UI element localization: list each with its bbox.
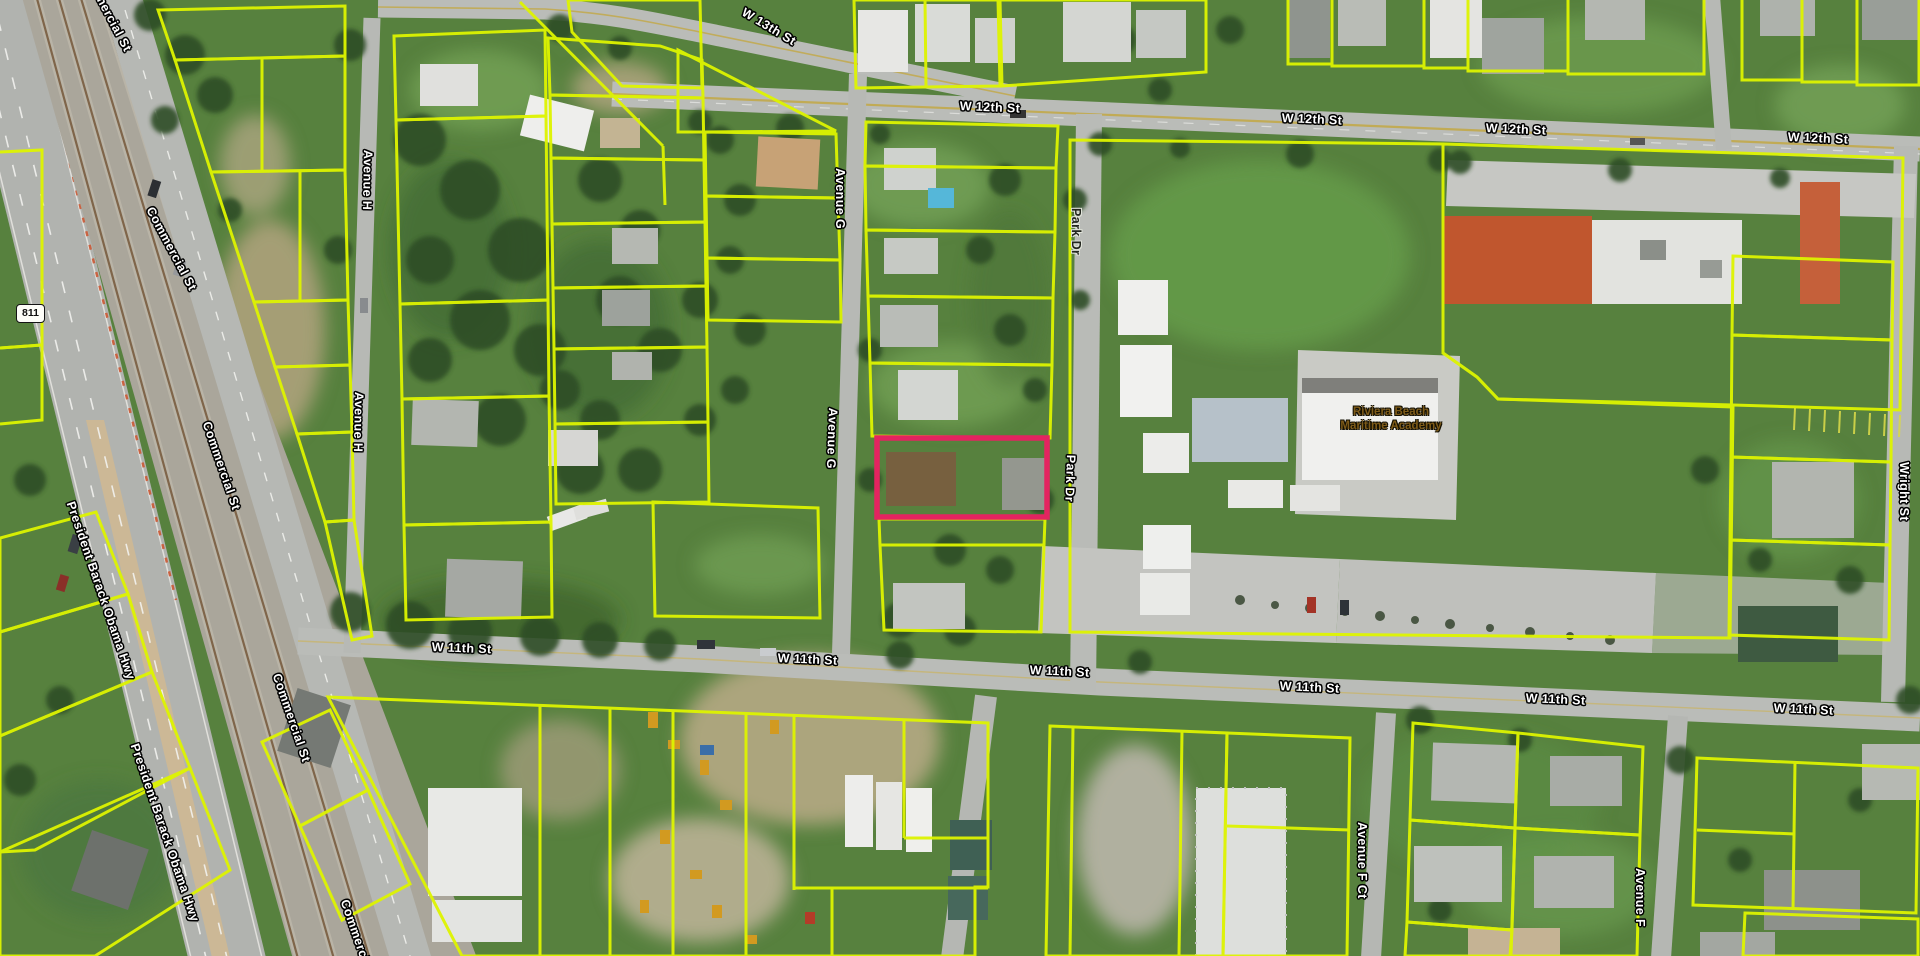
street-label: Wright St — [1896, 462, 1910, 521]
street-label: W 12th St — [1281, 112, 1342, 128]
street-label: Avenue G — [832, 168, 846, 229]
aerial-imagery — [0, 0, 1920, 956]
street-label: Avenue H — [359, 150, 374, 211]
street-label: W 12th St — [1485, 122, 1546, 138]
route-811-shield: 811 — [16, 304, 45, 323]
street-label: Park Dr — [1062, 455, 1077, 503]
street-label: Park Dr — [1068, 208, 1082, 255]
place-label-line1: Riviera Beach — [1330, 405, 1452, 419]
street-label: W 11th St — [1029, 664, 1089, 680]
street-label: Avenue F Ct — [1354, 822, 1368, 899]
street-label: W 11th St — [777, 652, 837, 668]
street-label: W 11th St — [1279, 680, 1339, 696]
street-label: W 11th St — [1525, 692, 1585, 708]
place-label-maritime-academy: Riviera Beach Maritime Academy — [1330, 405, 1452, 434]
street-label: Avenue G — [823, 408, 839, 470]
map-canvas[interactable]: W 13th St W 12th St W 12th St W 12th St … — [0, 0, 1920, 956]
street-label: Avenue F — [1632, 868, 1646, 927]
place-label-line2: Maritime Academy — [1330, 419, 1452, 433]
street-label: Avenue H — [350, 392, 365, 453]
street-label: W 11th St — [1773, 702, 1833, 718]
street-label: W 11th St — [431, 641, 491, 657]
street-label: W 12th St — [959, 100, 1020, 116]
street-label: W 12th St — [1787, 131, 1848, 147]
